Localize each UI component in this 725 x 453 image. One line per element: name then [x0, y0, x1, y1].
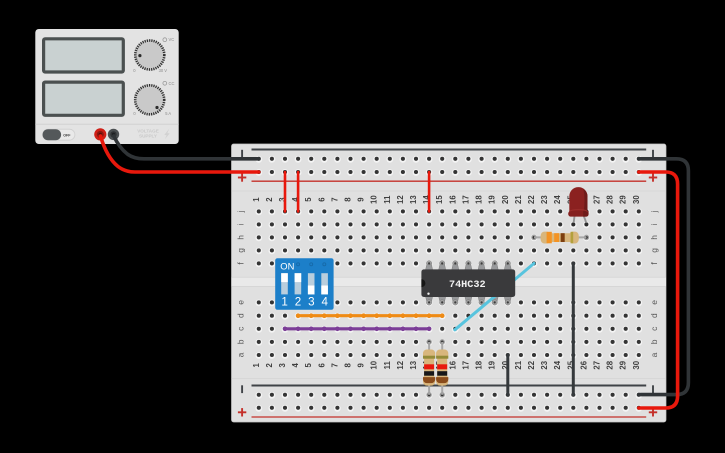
svg-text:5 A: 5 A: [165, 111, 171, 116]
svg-text:j: j: [649, 210, 659, 213]
svg-text:i: i: [235, 223, 245, 225]
svg-text:24: 24: [553, 360, 562, 369]
svg-text:27: 27: [593, 361, 602, 370]
svg-text:18: 18: [475, 195, 484, 204]
svg-text:18: 18: [475, 360, 484, 369]
svg-text:SUPPLY: SUPPLY: [139, 134, 157, 139]
svg-text:29: 29: [619, 195, 628, 204]
svg-text:26: 26: [579, 360, 588, 369]
svg-text:b: b: [235, 339, 245, 344]
svg-text:CC: CC: [169, 81, 175, 86]
svg-text:21: 21: [514, 360, 523, 369]
svg-text:1: 1: [252, 197, 261, 202]
svg-text:g: g: [649, 248, 659, 253]
svg-text:12: 12: [396, 360, 405, 369]
svg-text:a: a: [649, 352, 659, 357]
svg-text:8: 8: [344, 197, 353, 202]
svg-text:h: h: [235, 235, 245, 240]
svg-text:12: 12: [396, 195, 405, 204]
svg-text:17: 17: [461, 195, 470, 204]
svg-text:7: 7: [330, 363, 339, 367]
svg-text:5: 5: [304, 362, 313, 367]
svg-text:9: 9: [357, 362, 366, 367]
svg-text:OFF: OFF: [63, 133, 71, 137]
svg-text:ON: ON: [280, 261, 294, 272]
svg-text:2: 2: [265, 197, 274, 202]
svg-text:e: e: [235, 300, 245, 305]
svg-text:10: 10: [370, 195, 379, 204]
svg-text:4: 4: [321, 295, 328, 308]
svg-text:10: 10: [370, 360, 379, 369]
svg-text:a: a: [235, 352, 245, 357]
svg-text:23: 23: [540, 195, 549, 204]
svg-text:21: 21: [514, 195, 523, 204]
svg-text:2: 2: [295, 295, 301, 308]
svg-text:11: 11: [383, 195, 392, 204]
svg-text:2: 2: [265, 362, 274, 367]
svg-text:g: g: [235, 248, 245, 253]
svg-text:11: 11: [383, 361, 392, 370]
svg-text:9: 9: [357, 197, 366, 202]
svg-text:27: 27: [593, 195, 602, 204]
svg-text:i: i: [649, 223, 659, 225]
svg-text:28: 28: [606, 360, 615, 369]
svg-text:b: b: [649, 339, 659, 344]
svg-text:3: 3: [308, 295, 314, 308]
svg-text:3: 3: [278, 362, 287, 367]
svg-text:22: 22: [527, 195, 536, 204]
svg-text:28: 28: [606, 195, 615, 204]
svg-text:1: 1: [281, 295, 287, 308]
svg-text:15: 15: [435, 195, 444, 204]
svg-text:13: 13: [409, 360, 418, 369]
svg-text:24: 24: [553, 195, 562, 204]
svg-text:74HC32: 74HC32: [449, 280, 486, 291]
svg-text:d: d: [649, 313, 659, 318]
svg-text:e: e: [649, 300, 659, 305]
svg-text:5: 5: [304, 197, 313, 202]
svg-text:h: h: [649, 235, 659, 240]
svg-text:17: 17: [461, 361, 470, 370]
svg-text:19: 19: [488, 360, 497, 369]
svg-text:23: 23: [540, 360, 549, 369]
svg-text:6: 6: [317, 197, 326, 202]
svg-text:VC: VC: [169, 37, 175, 42]
svg-text:29: 29: [619, 360, 628, 369]
svg-text:22: 22: [527, 360, 536, 369]
svg-text:7: 7: [330, 197, 339, 201]
svg-text:1: 1: [252, 362, 261, 367]
svg-text:30: 30: [632, 195, 641, 204]
svg-text:30: 30: [632, 360, 641, 369]
svg-text:d: d: [235, 313, 245, 318]
svg-text:16: 16: [448, 360, 457, 369]
svg-text:VOLTAGE: VOLTAGE: [137, 128, 159, 133]
svg-text:16: 16: [448, 195, 457, 204]
svg-text:6: 6: [317, 362, 326, 367]
svg-text:20: 20: [501, 195, 510, 204]
svg-text:j: j: [235, 210, 245, 213]
svg-text:4: 4: [291, 362, 300, 367]
svg-text:19: 19: [488, 195, 497, 204]
svg-text:30 V: 30 V: [159, 68, 168, 73]
svg-text:13: 13: [409, 195, 418, 204]
svg-text:8: 8: [344, 362, 353, 367]
